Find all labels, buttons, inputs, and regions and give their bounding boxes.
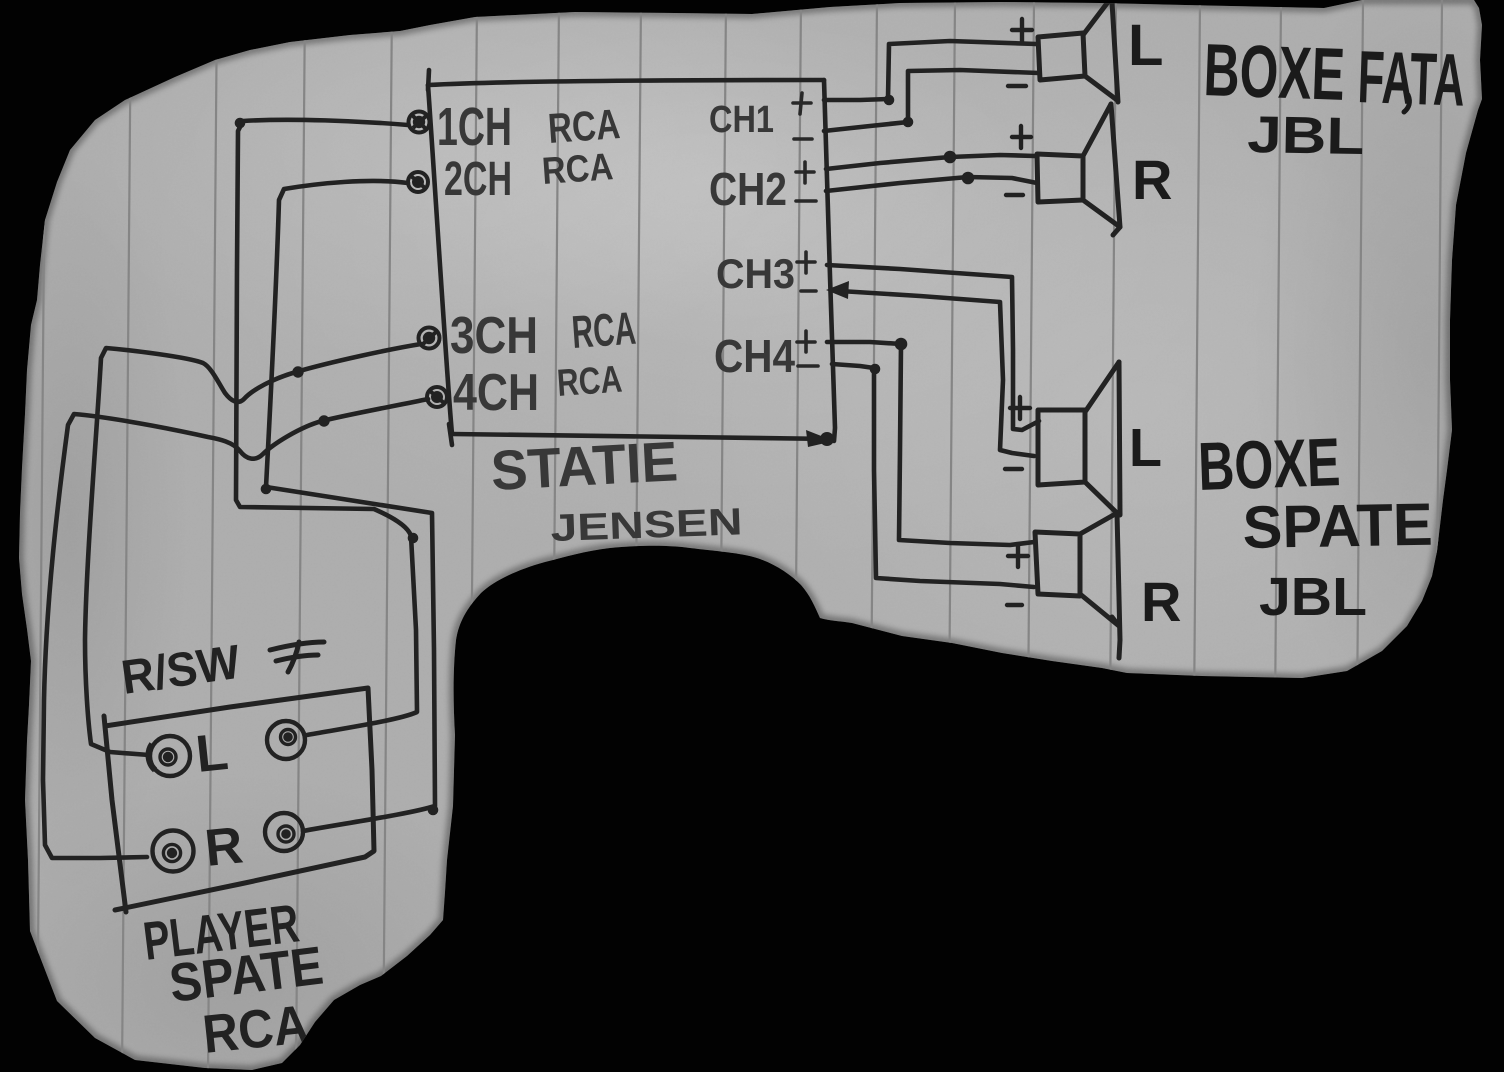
svg-text:SPATE: SPATE (1242, 491, 1433, 561)
svg-text:JENSEN: JENSEN (550, 501, 743, 550)
svg-text:3CH: 3CH (450, 307, 538, 365)
svg-text:CH4: CH4 (714, 330, 795, 382)
svg-text:CH2: CH2 (709, 163, 787, 215)
svg-text:RCA: RCA (541, 146, 615, 193)
svg-text:BOXE: BOXE (1202, 28, 1346, 116)
svg-text:R: R (202, 816, 245, 878)
svg-text:L: L (1129, 418, 1162, 478)
svg-text:L: L (193, 723, 231, 784)
svg-text:L: L (1128, 13, 1163, 78)
svg-text:STATIE: STATIE (489, 429, 679, 502)
svg-text:JBL: JBL (1247, 106, 1365, 166)
svg-text:4CH: 4CH (453, 364, 539, 422)
svg-text:R: R (1132, 148, 1172, 211)
svg-text:RCA: RCA (570, 302, 637, 358)
svg-text:RCA: RCA (556, 359, 624, 405)
svg-text:R: R (1141, 570, 1181, 633)
svg-text:2CH: 2CH (444, 153, 512, 206)
svg-text:RCA: RCA (546, 100, 621, 152)
svg-text:CH3: CH3 (716, 250, 795, 297)
svg-text:FATA: FATA (1356, 35, 1466, 122)
svg-text:1CH: 1CH (437, 97, 512, 157)
svg-text:CH1: CH1 (709, 99, 774, 141)
svg-text:JBL: JBL (1259, 567, 1367, 627)
